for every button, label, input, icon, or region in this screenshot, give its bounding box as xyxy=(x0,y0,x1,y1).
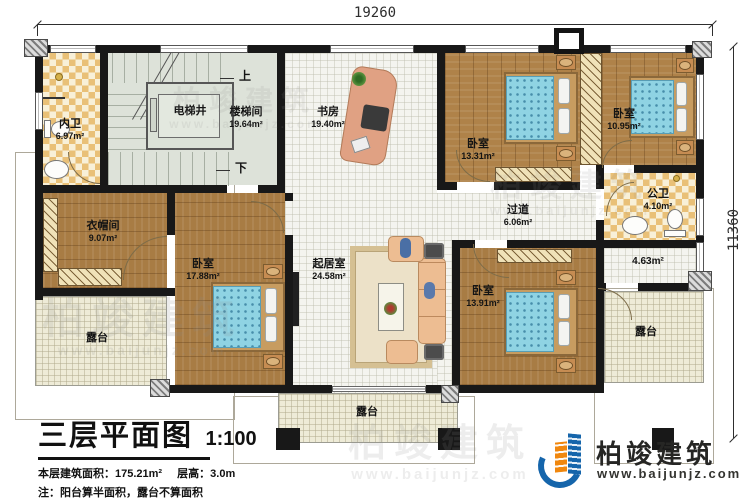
floor-plan-page: 内卫 6.97m² 电梯井 楼梯间 19.64m² 书房 19.40m² 卧室 … xyxy=(0,0,750,499)
room-name: 卧室 xyxy=(452,285,514,298)
towel-bar xyxy=(43,97,65,99)
room-label-terrace-left: 露台 xyxy=(75,332,119,345)
cloakroom-wardrobe-left xyxy=(43,198,58,272)
drawing-scale: 1:100 xyxy=(205,428,256,450)
wall-lamp xyxy=(55,73,63,81)
table-flowers xyxy=(384,302,397,315)
bed-pillow xyxy=(558,108,570,134)
bed-pillow xyxy=(558,294,570,319)
room-name: 露台 xyxy=(345,406,389,419)
window xyxy=(696,74,704,140)
room-area: 6.06m² xyxy=(488,217,548,227)
room-area: 13.31m² xyxy=(448,151,508,161)
room-area: 10.95m² xyxy=(594,121,654,131)
sink-icon xyxy=(622,216,648,235)
nightstand xyxy=(676,58,694,73)
room-label-gongwei: 公卫 4.10m² xyxy=(630,188,686,211)
room-name: 露台 xyxy=(75,332,119,345)
wall xyxy=(258,185,285,193)
wall xyxy=(596,240,704,248)
wall xyxy=(293,385,332,393)
dimension-line-top xyxy=(37,24,713,25)
wall xyxy=(596,248,604,393)
corner-block xyxy=(441,385,459,403)
wall xyxy=(285,193,293,201)
wall xyxy=(452,385,604,393)
nightstand xyxy=(556,55,576,70)
bedroom-a-closet xyxy=(495,167,572,182)
brand-logo: 柏竣建筑 www.baijunjz.com xyxy=(538,432,744,492)
bed-pillow xyxy=(265,288,277,314)
wall xyxy=(494,182,580,190)
corner-block xyxy=(692,41,712,58)
room-label-bedroom-a: 卧室 13.31m² xyxy=(448,138,508,161)
room-label-bedroom-d: 卧室 13.91m² xyxy=(452,285,514,308)
person-figure xyxy=(400,238,411,258)
stair-treads-top xyxy=(112,53,230,83)
stair-treads-bottom xyxy=(108,152,230,186)
sink-icon xyxy=(44,160,69,179)
toilet-icon xyxy=(667,209,683,229)
wall xyxy=(35,288,175,296)
window xyxy=(610,45,686,53)
bed-mattress xyxy=(506,76,554,140)
sofa-chair xyxy=(386,340,418,364)
room-name: 卧室 xyxy=(448,138,508,151)
logo-tower-orange xyxy=(555,441,567,472)
room-label-hall-area: 4.63m² xyxy=(618,256,678,268)
corner-block xyxy=(24,39,48,57)
pillar xyxy=(276,428,300,450)
wall xyxy=(507,240,596,248)
room-area: 17.88m² xyxy=(172,271,234,281)
wall xyxy=(35,45,43,300)
room-name: 内卫 xyxy=(40,118,100,131)
wall xyxy=(634,165,704,173)
room-label-yimaojian: 衣帽间 9.07m² xyxy=(72,220,134,243)
bed-mattress xyxy=(213,286,261,348)
wall xyxy=(285,235,293,393)
wall-lamp xyxy=(673,175,680,182)
wall xyxy=(167,385,293,393)
room-area: 19.64m² xyxy=(214,119,278,129)
room-name: 起居室 xyxy=(296,258,362,271)
corner-block xyxy=(688,271,712,291)
room-label-shufang: 书房 19.40m² xyxy=(296,106,360,129)
room-area: 6.97m² xyxy=(40,131,100,141)
dimension-ext xyxy=(712,24,713,36)
floor-height-text: 层高：3.0m xyxy=(177,468,235,480)
room-label-guodao: 过道 6.06m² xyxy=(488,204,548,227)
dimension-top-value: 19260 xyxy=(340,5,410,21)
room-area: 4.63m² xyxy=(618,256,678,268)
room-label-terrace-bottom: 露台 xyxy=(345,406,389,419)
room-name: 楼梯间 xyxy=(214,106,278,119)
sliding-door xyxy=(332,386,426,392)
room-name: 衣帽间 xyxy=(72,220,134,233)
cloakroom-wardrobe-bottom xyxy=(58,268,122,286)
wall xyxy=(100,53,108,193)
wall xyxy=(437,53,445,190)
nightstand xyxy=(556,358,576,373)
room-name: 书房 xyxy=(296,106,360,119)
person-figure xyxy=(424,282,435,299)
room-name: 公卫 xyxy=(630,188,686,201)
stair-up-label: 上 xyxy=(236,70,254,84)
room-area: 24.58m² xyxy=(296,271,362,281)
page-title: 三层平面图 xyxy=(38,420,193,452)
room-label-neiwei: 内卫 6.97m² xyxy=(40,118,100,141)
wall xyxy=(277,53,285,193)
note-text: 注：阳台算半面积，露台不算面积 xyxy=(38,484,268,499)
nightstand xyxy=(676,140,694,155)
room-label-terrace-right: 露台 xyxy=(622,326,670,339)
wall xyxy=(452,240,475,248)
logo-icon xyxy=(538,432,590,490)
window xyxy=(696,242,704,272)
room-label-bedroom-c: 卧室 17.88m² xyxy=(172,258,234,281)
room-name: 卧室 xyxy=(172,258,234,271)
window xyxy=(330,45,414,53)
room-label-bedroom-b: 卧室 10.95m² xyxy=(594,108,654,131)
sofa-main xyxy=(418,258,446,344)
bed-pillow xyxy=(558,321,570,346)
window xyxy=(50,45,96,53)
room-name: 露台 xyxy=(622,326,670,339)
pillar xyxy=(438,428,460,450)
room-name: 卧室 xyxy=(594,108,654,121)
room-area: 19.40m² xyxy=(296,119,360,129)
window xyxy=(696,198,704,236)
room-name: 过道 xyxy=(488,204,548,217)
bed-pillow xyxy=(676,82,687,106)
monitor-icon xyxy=(360,104,389,132)
bed-pillow xyxy=(558,78,570,104)
wall xyxy=(596,165,604,189)
room-label-qijushi: 起居室 24.58m² xyxy=(296,258,362,281)
side-table xyxy=(424,243,444,259)
room-area: 4.10m² xyxy=(630,201,686,211)
floor-area-text: 本层建筑面积：175.21m² xyxy=(38,468,162,480)
stair-up-dash xyxy=(220,78,234,79)
logo-tower-blue xyxy=(568,433,581,474)
nightstand xyxy=(263,264,283,279)
side-table xyxy=(424,344,444,360)
window xyxy=(465,45,539,53)
corner-block xyxy=(150,379,170,397)
bed-pillow xyxy=(265,316,277,342)
dimension-right-value: 11360 xyxy=(726,202,742,258)
dimension-ext xyxy=(37,24,38,36)
wall xyxy=(437,182,457,190)
flue-box xyxy=(554,28,584,54)
wall xyxy=(452,240,460,393)
title-block: 三层平面图 1:100 本层建筑面积：175.21m² 层高：3.0m 注：阳台… xyxy=(38,412,268,499)
window xyxy=(160,45,248,53)
nightstand xyxy=(556,270,576,285)
wall xyxy=(167,193,175,235)
toilet-tank xyxy=(664,230,686,237)
wall xyxy=(35,185,227,193)
stair-down-label: 下 xyxy=(232,162,250,176)
room-area: 13.91m² xyxy=(452,298,514,308)
brand-site: www.baijunjz.com xyxy=(597,466,741,481)
room-label-louti: 楼梯间 19.64m² xyxy=(214,106,278,129)
title-rule xyxy=(38,457,210,460)
stair-down-dash xyxy=(216,170,230,171)
bed-pillow xyxy=(676,108,687,132)
room-area: 9.07m² xyxy=(72,233,134,243)
nightstand xyxy=(556,146,576,161)
desk-plant-icon xyxy=(352,72,366,86)
nightstand xyxy=(263,354,283,369)
